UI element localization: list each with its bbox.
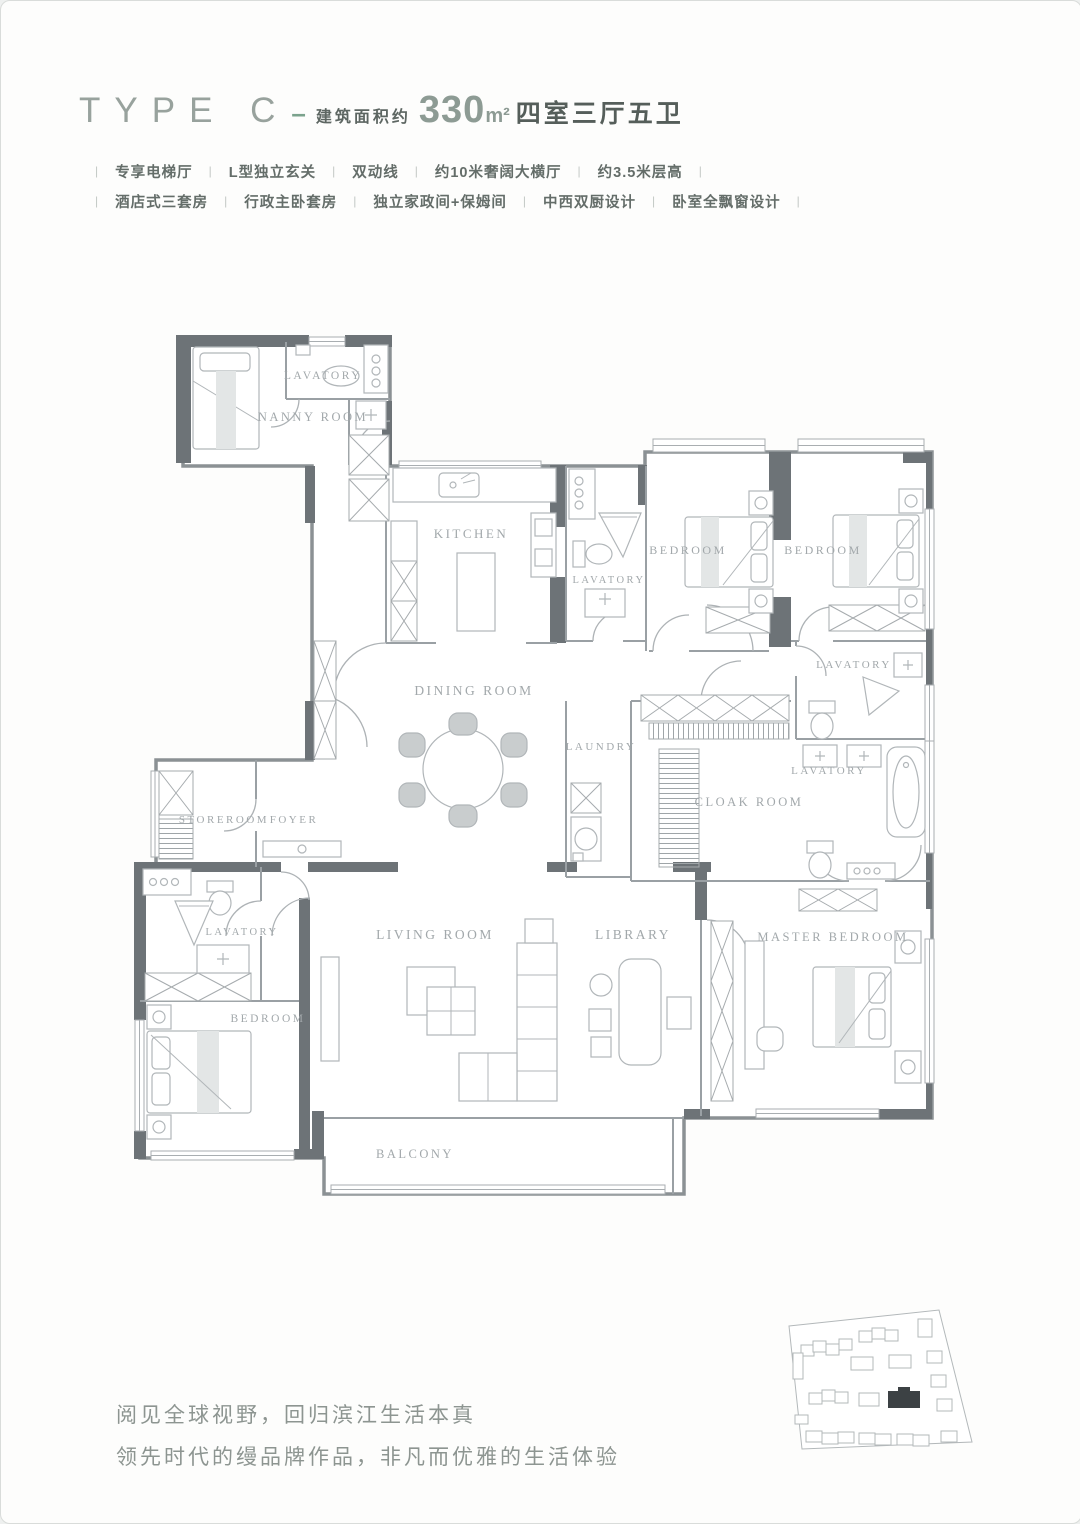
toilet <box>807 841 833 878</box>
floorplan-page: TYPE C – 建筑面积约 330 m² 四室三厅五卫 | 专享电梯厅 | L… <box>0 0 1080 1524</box>
room-label-lavatory-kitchen: LAVATORY <box>572 575 645 586</box>
tagline-line1: 阅见全球视野，回归滨江生活本真 <box>116 1395 620 1437</box>
room-label-laundry: LAUNDRY <box>566 741 637 753</box>
toilet <box>207 881 233 915</box>
room-label-lavatory-left: LAVATORY <box>205 927 278 938</box>
room-label-lavatory-hall: LAVATORY <box>816 659 892 671</box>
room-label-living-room: LIVING ROOM <box>376 927 494 942</box>
room-label-nanny-room: NANNY ROOM <box>258 410 368 424</box>
tagline-line2: 领先时代的缦品牌作品，非凡而优雅的生活体验 <box>116 1437 620 1479</box>
room-label-kitchen: KITCHEN <box>434 526 509 541</box>
floorplan-drawing: LAVATORY NANNY ROOM KITCHEN LAVATORY BED… <box>1 1 1080 1523</box>
highlighted-building <box>888 1391 920 1408</box>
room-label-lavatory-master: LAVATORY <box>791 765 867 777</box>
room-label-bedroom-left: BEDROOM <box>230 1013 305 1025</box>
room-label-bedroom-1: BEDROOM <box>649 543 727 557</box>
room-label-balcony: BALCONY <box>376 1147 454 1161</box>
room-label-dining-room: DINING ROOM <box>414 683 533 698</box>
site-key-plan <box>789 1310 972 1449</box>
room-label-library: LIBRARY <box>595 927 671 942</box>
bathtub <box>887 747 925 837</box>
room-label-lavatory-nanny: LAVATORY <box>284 370 362 382</box>
room-label-bedroom-2: BEDROOM <box>784 543 862 557</box>
laundry-appliances <box>571 817 601 861</box>
room-label-cloak-room: CLOAK ROOM <box>695 795 804 809</box>
toilet <box>809 701 835 739</box>
tagline: 阅见全球视野，回归滨江生活本真 领先时代的缦品牌作品，非凡而优雅的生活体验 <box>116 1395 620 1479</box>
nanny-bed <box>193 347 259 449</box>
foyer-console <box>263 841 341 857</box>
room-label-master-bedroom: MASTER BEDROOM <box>757 930 908 944</box>
room-label-storeroom: STOREROOM <box>179 814 269 826</box>
room-label-foyer: FOYER <box>270 814 319 826</box>
